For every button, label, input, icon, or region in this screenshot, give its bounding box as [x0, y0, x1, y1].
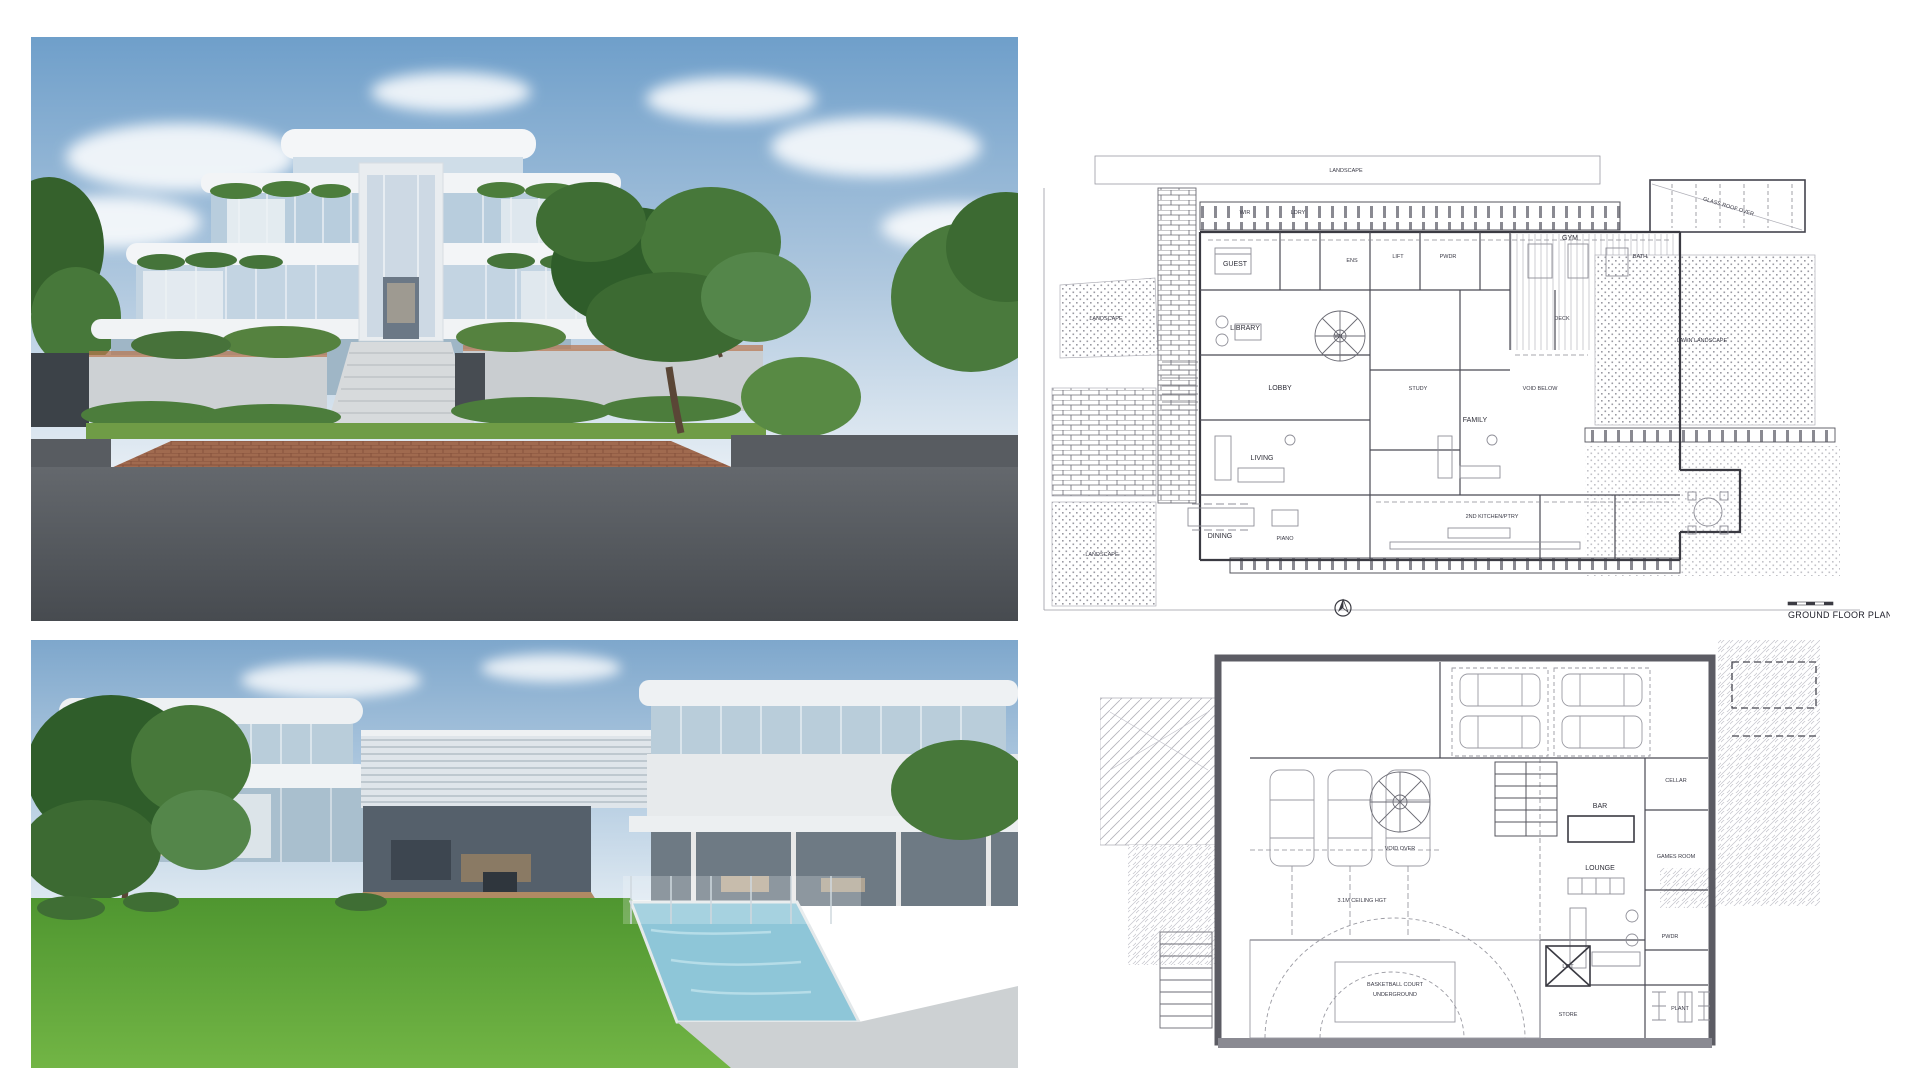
room-label: LANDSCAPE [1089, 316, 1123, 322]
room-label: LIBRARY [1230, 325, 1260, 332]
room-label: LOBBY [1268, 385, 1292, 392]
rear-courtyard-render [31, 640, 1018, 1068]
louver-bridge [361, 730, 667, 808]
room-label: LIVING [1251, 455, 1274, 462]
basement-plan-canvas: VOID OVER BAR CELLAR LOUNGE GAMES ROOM P… [1100, 640, 1820, 1080]
north-arrow-icon [1335, 599, 1351, 616]
room-label: PWDR [1440, 254, 1457, 260]
room-label: GLASS ROOF OVER [1702, 196, 1754, 217]
plan-title: GROUND FLOOR PLAN [1788, 610, 1890, 620]
room-label: PIANO [1276, 536, 1294, 542]
room-label: VOID OVER [1385, 846, 1416, 852]
front-verandah [1200, 202, 1620, 230]
room-label: 3.1M CEILING HGT [1338, 898, 1388, 904]
rear-verandah [1585, 428, 1835, 442]
garage-cars [1270, 770, 1430, 938]
room-label: STUDY [1409, 386, 1428, 392]
room-label: PLANT [1671, 1006, 1689, 1012]
room-label: LIFT [1392, 254, 1404, 260]
driveway-paving [1128, 845, 1216, 965]
room-label: VOID BELOW [1523, 386, 1559, 392]
driveway-ramp [1100, 698, 1216, 845]
room-label: GYM [1562, 235, 1578, 242]
entry-stairs [325, 342, 477, 433]
room-label: STORE [1559, 1012, 1578, 1018]
rear-render-canvas [31, 640, 1018, 1068]
room-label: FAMILY [1463, 417, 1488, 424]
room-label: UNDERGROUND [1373, 992, 1417, 998]
room-label: LANDSCAPE [1329, 168, 1363, 174]
room-label: PWDR [1662, 934, 1679, 940]
glass-pool-fence [623, 876, 861, 924]
lounge-furniture [1568, 878, 1640, 968]
ground-floor-plan: GROUND FLOOR PLAN LANDSCAPE LANDSCAPE LA… [1040, 140, 1890, 635]
entry-tower [359, 163, 443, 341]
seated-figure [483, 872, 517, 892]
room-label: 2ND KITCHEN/PTRY [1466, 514, 1519, 520]
room-label: LOUNGE [1585, 865, 1615, 872]
room-label: BAR [1593, 803, 1607, 810]
room-label: ENS [1346, 258, 1358, 264]
stacker-cars [1452, 668, 1650, 756]
room-label: LIFT [1562, 964, 1574, 970]
bar-counter [1568, 816, 1634, 842]
patio-paving [1585, 446, 1840, 576]
basement-floor-plan: VOID OVER BAR CELLAR LOUNGE GAMES ROOM P… [1100, 640, 1820, 1080]
front-exterior-render [31, 37, 1018, 621]
room-label: LANDSCAPE [1085, 552, 1119, 558]
basketball-court [1250, 918, 1540, 1038]
brick-feature-wall [1158, 188, 1196, 503]
title-block: GROUND FLOOR PLAN [1788, 602, 1890, 620]
street [31, 435, 1018, 621]
room-label: GAMES ROOM [1657, 854, 1696, 860]
room-label: DECK [1554, 316, 1570, 322]
architectural-presentation-sheet: GROUND FLOOR PLAN LANDSCAPE LANDSCAPE LA… [0, 0, 1920, 1080]
bottom-retaining-wall [1218, 1038, 1712, 1048]
room-label: W.L. [1334, 334, 1345, 340]
void-spiral [1370, 772, 1430, 832]
room-label: GUEST [1223, 261, 1248, 268]
landscape-hatches [1052, 188, 1196, 606]
ground-plan-canvas: GROUND FLOOR PLAN LANDSCAPE LANDSCAPE LA… [1040, 140, 1890, 635]
room-label: WIR [1240, 210, 1251, 216]
side-gate-dark [31, 353, 89, 427]
room-labels: VOID OVER BAR CELLAR LOUNGE GAMES ROOM P… [1338, 778, 1696, 1018]
asphalt-road [31, 467, 1018, 621]
room-label: BATH [1633, 254, 1647, 260]
room-label: DINING [1208, 533, 1233, 540]
room-label: BASKETBALL COURT [1367, 982, 1424, 988]
main-stair [1495, 762, 1557, 836]
room-label: LAWN LANDSCAPE [1677, 338, 1728, 344]
brick-apron [109, 441, 736, 469]
room-label: LDRY [1291, 210, 1306, 216]
roof-canopy [281, 129, 536, 159]
room-label: CELLAR [1665, 778, 1686, 784]
front-render-canvas [31, 37, 1018, 621]
